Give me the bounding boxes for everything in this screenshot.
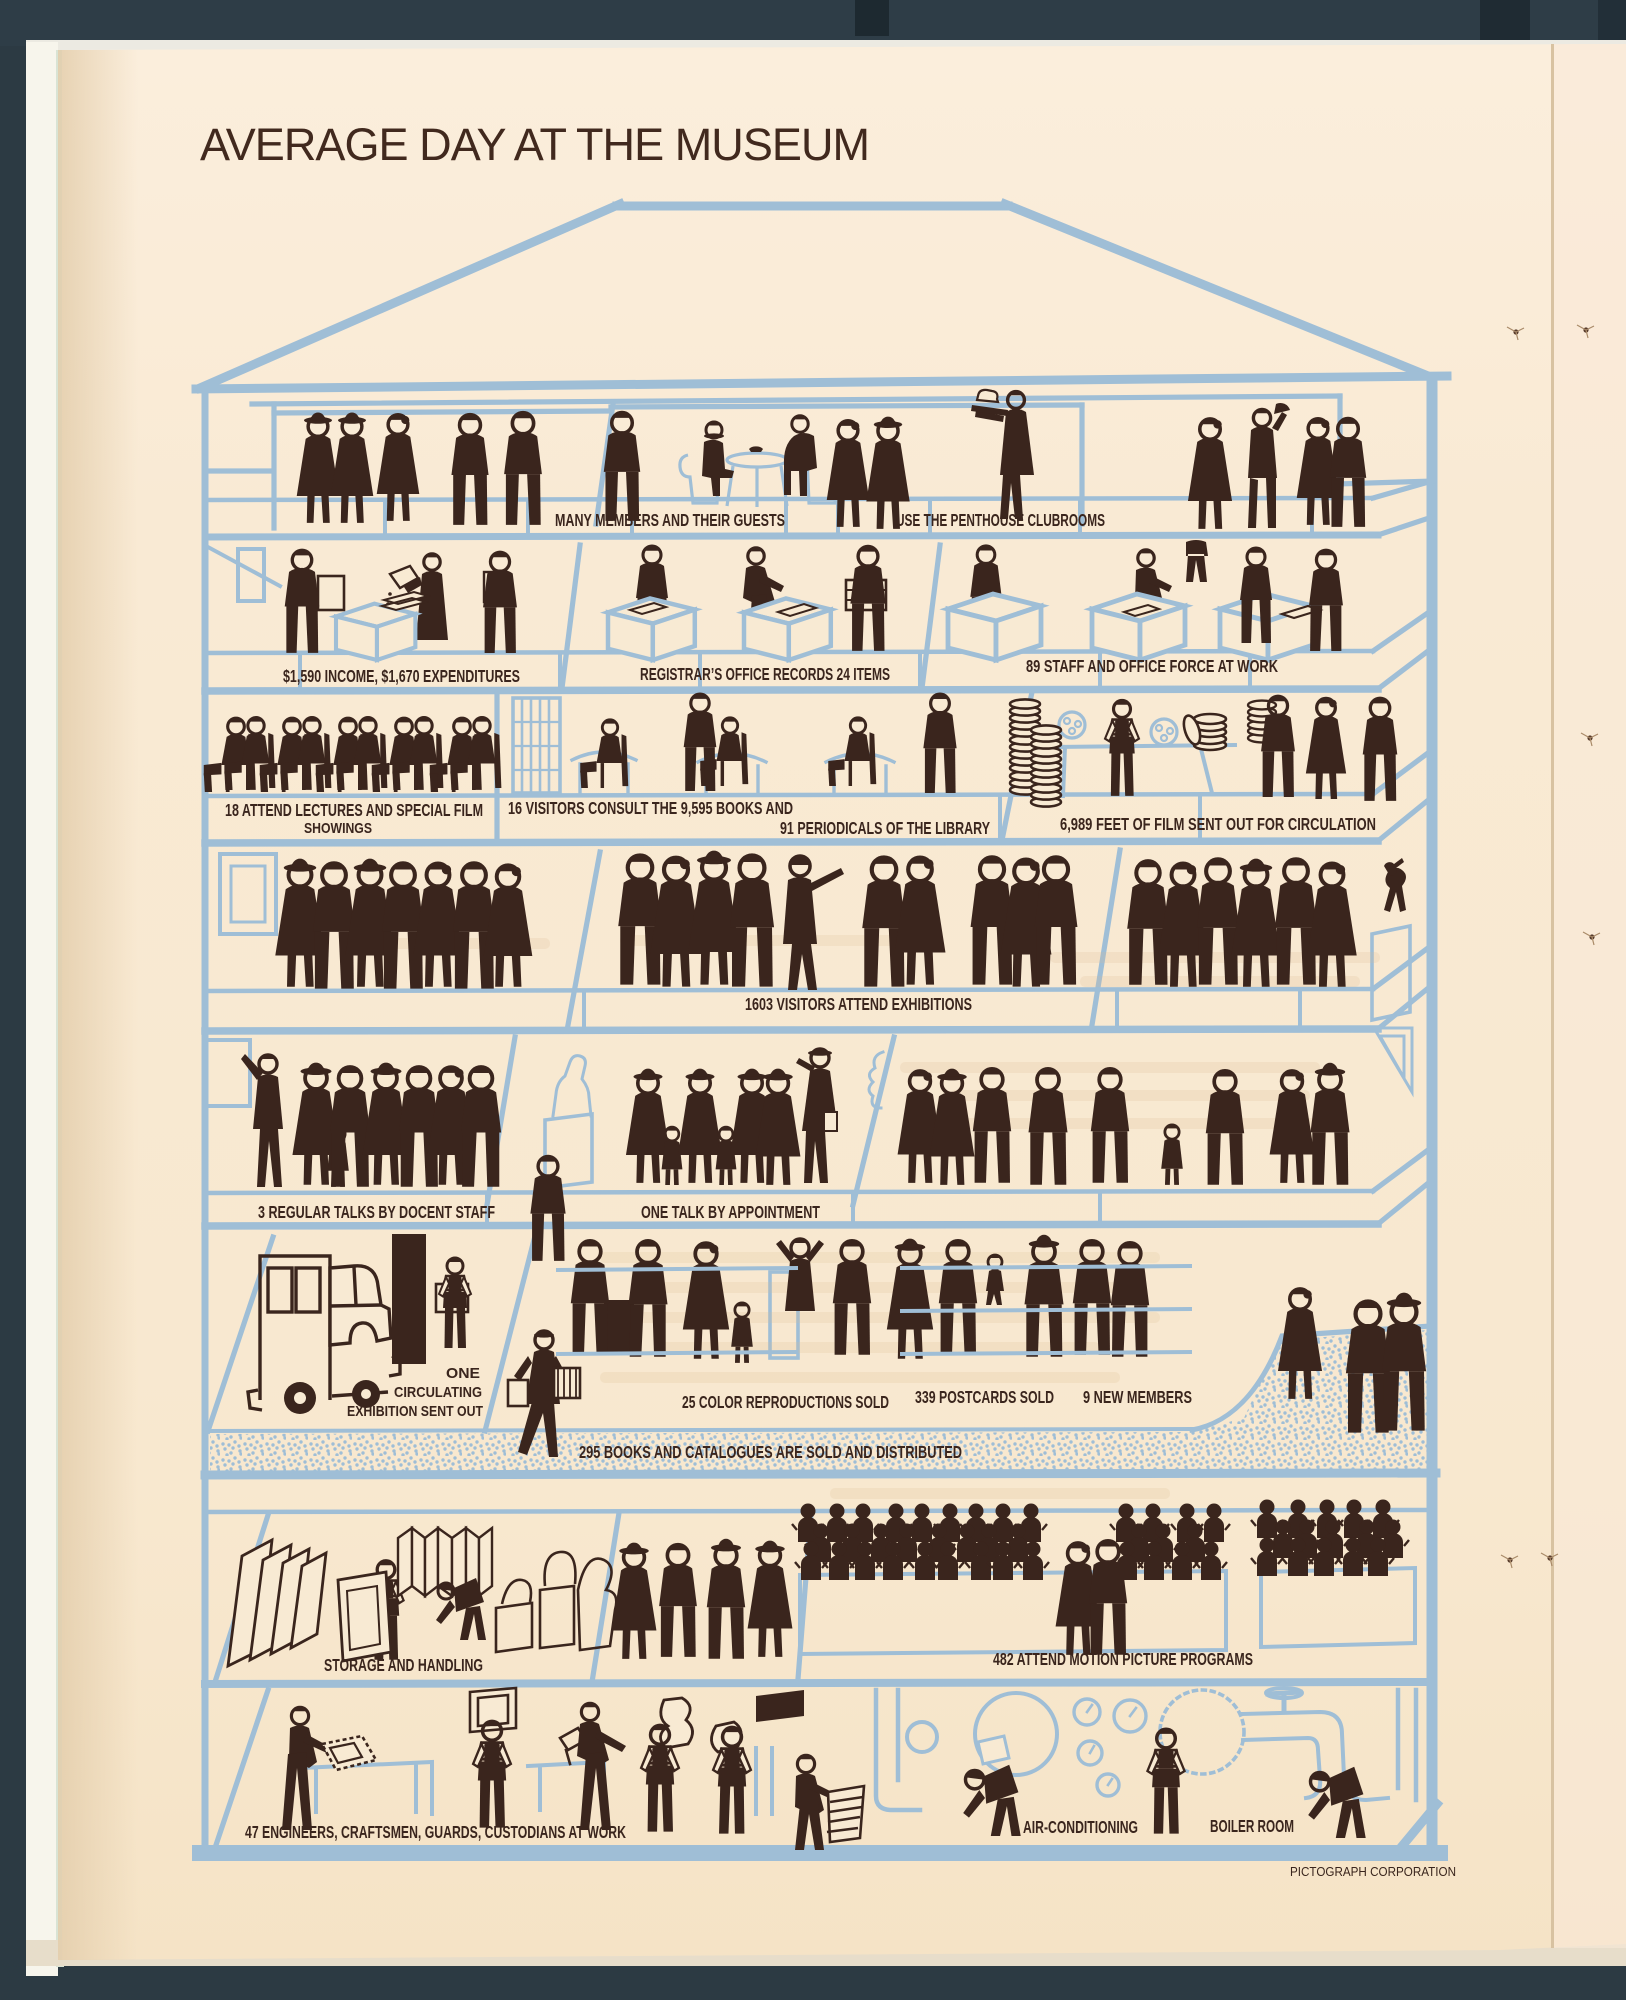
svg-text:339 POSTCARDS SOLD: 339 POSTCARDS SOLD bbox=[915, 1387, 1054, 1407]
svg-text:SHOWINGS: SHOWINGS bbox=[304, 820, 372, 837]
svg-text:295 BOOKS AND CATALOGUES ARE S: 295 BOOKS AND CATALOGUES ARE SOLD AND DI… bbox=[579, 1442, 962, 1462]
svg-text:ONE: ONE bbox=[446, 1365, 480, 1382]
svg-text:482 ATTEND MOTION PICTURE PROG: 482 ATTEND MOTION PICTURE PROGRAMS bbox=[993, 1649, 1253, 1669]
svg-text:BOILER ROOM: BOILER ROOM bbox=[1210, 1816, 1294, 1836]
svg-text:25 COLOR REPRODUCTIONS SOLD: 25 COLOR REPRODUCTIONS SOLD bbox=[682, 1392, 889, 1412]
svg-text:6,989 FEET OF FILM SENT OUT FO: 6,989 FEET OF FILM SENT OUT FOR CIRCULAT… bbox=[1060, 814, 1376, 834]
svg-text:STORAGE AND HANDLING: STORAGE AND HANDLING bbox=[324, 1655, 483, 1675]
svg-text:REGISTRAR’S OFFICE RECORDS 24: REGISTRAR’S OFFICE RECORDS 24 ITEMS bbox=[640, 664, 890, 684]
svg-text:$1,590 INCOME, $1,670 EXPENDIT: $1,590 INCOME, $1,670 EXPENDITURES bbox=[283, 666, 520, 686]
svg-text:EXHIBITION SENT OUT: EXHIBITION SENT OUT bbox=[347, 1403, 483, 1420]
svg-text:PICTOGRAPH CORPORATION: PICTOGRAPH CORPORATION bbox=[1290, 1865, 1456, 1879]
svg-text:89 STAFF AND OFFICE FORCE AT W: 89 STAFF AND OFFICE FORCE AT WORK bbox=[1026, 656, 1278, 676]
svg-text:18 ATTEND LECTURES AND SPECIAL: 18 ATTEND LECTURES AND SPECIAL FILM bbox=[225, 800, 483, 820]
svg-text:1603 VISITORS ATTEND EXHIBITIO: 1603 VISITORS ATTEND EXHIBITIONS bbox=[745, 994, 972, 1014]
svg-text:USE THE PENTHOUSE CLUBROOMS: USE THE PENTHOUSE CLUBROOMS bbox=[896, 510, 1105, 530]
svg-text:47 ENGINEERS, CRAFTSMEN, GUARD: 47 ENGINEERS, CRAFTSMEN, GUARDS, CUSTODI… bbox=[245, 1822, 626, 1842]
svg-text:AVERAGE DAY AT THE MUSEUM: AVERAGE DAY AT THE MUSEUM bbox=[200, 119, 876, 170]
svg-text:9 NEW MEMBERS: 9 NEW MEMBERS bbox=[1083, 1387, 1192, 1407]
svg-text:CIRCULATING: CIRCULATING bbox=[394, 1384, 482, 1401]
svg-text:MANY MEMBERS AND THEIR GUESTS: MANY MEMBERS AND THEIR GUESTS bbox=[555, 510, 785, 530]
svg-text:3 REGULAR TALKS BY DOCENT STAF: 3 REGULAR TALKS BY DOCENT STAFF bbox=[258, 1202, 495, 1222]
svg-text:91 PERIODICALS OF THE LIBRARY: 91 PERIODICALS OF THE LIBRARY bbox=[780, 818, 990, 838]
svg-text:ONE TALK BY APPOINTMENT: ONE TALK BY APPOINTMENT bbox=[641, 1202, 820, 1222]
svg-text:16 VISITORS CONSULT THE 9,595: 16 VISITORS CONSULT THE 9,595 BOOKS AND bbox=[508, 798, 793, 818]
svg-text:AIR-CONDITIONING: AIR-CONDITIONING bbox=[1023, 1817, 1138, 1837]
